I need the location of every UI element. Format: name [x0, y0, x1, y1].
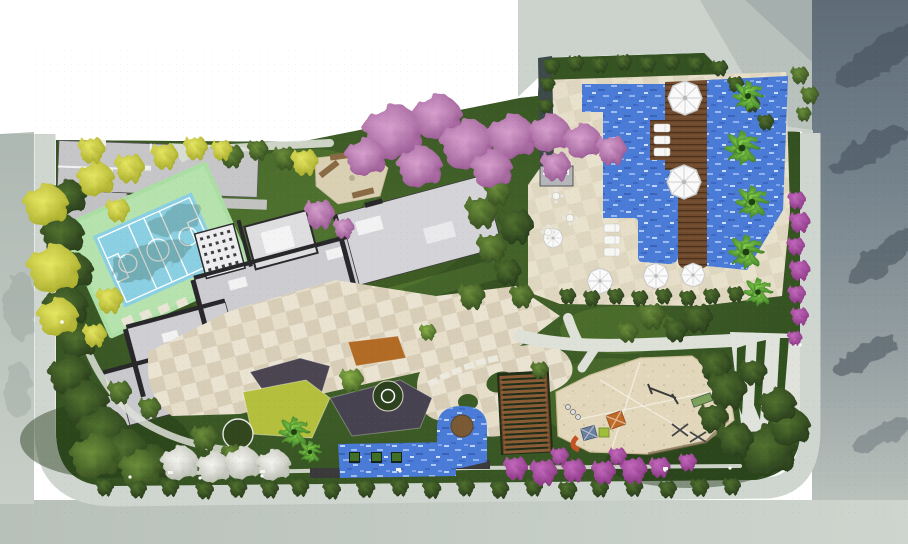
site-details: [30, 48, 908, 518]
render-grain: [30, 48, 908, 518]
site-plan-rendering: [0, 0, 908, 544]
